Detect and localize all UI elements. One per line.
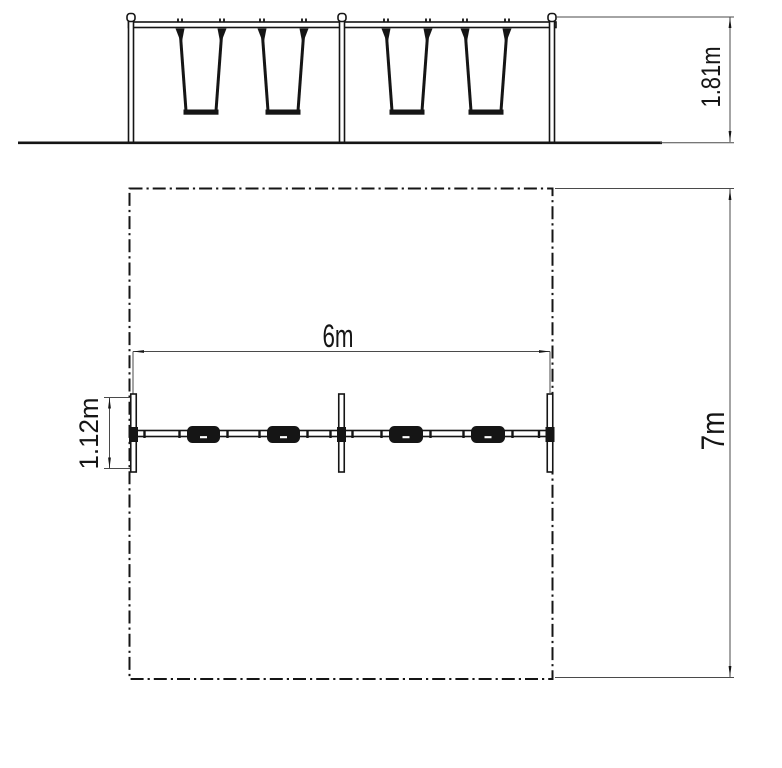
- height-dimension-label: 1.81m: [696, 47, 726, 108]
- dimension-depth: 7m: [555, 189, 734, 678]
- post-cap-middle: [338, 14, 346, 22]
- plan-view: 6m 7m 1.12m: [74, 189, 734, 680]
- swing-chain-right: [216, 29, 222, 111]
- swing-seat: [469, 110, 504, 115]
- swing-chain-left: [465, 29, 471, 111]
- swing-chain-right: [298, 29, 304, 111]
- swing-1: [176, 29, 227, 115]
- swing-seat: [390, 110, 425, 115]
- plan-hub-right: [546, 427, 555, 442]
- dimension-height: 1.81m: [557, 17, 734, 143]
- swing-chain-left: [262, 29, 268, 111]
- swing-seat: [266, 110, 301, 115]
- swing-chain-left: [386, 29, 392, 111]
- plan-hub-left: [129, 427, 138, 442]
- plan-seat-2: [267, 426, 300, 443]
- swing-seat: [184, 110, 219, 115]
- post-left: [129, 16, 134, 143]
- plan-hub-middle: [337, 427, 346, 442]
- plan-seat-3: [389, 426, 423, 443]
- swing-chain-right: [501, 29, 507, 111]
- width-dimension-label: 6m: [323, 318, 354, 354]
- swing-chain-left: [180, 29, 186, 111]
- dimension-frame-depth: 1.12m: [74, 398, 137, 470]
- depth-dimension-label: 7m: [695, 412, 731, 451]
- post-right: [550, 16, 555, 143]
- arrow-down-icon: [108, 458, 111, 469]
- arrow-right-icon: [539, 350, 550, 353]
- plan-seat-4: [471, 426, 505, 443]
- plan-seat-1: [187, 426, 220, 443]
- post-cap-left: [127, 14, 135, 22]
- arrow-up-icon: [108, 398, 111, 409]
- post-middle: [340, 16, 345, 143]
- arrow-up-icon: [729, 17, 732, 28]
- post-cap-right: [548, 14, 556, 22]
- frame-depth-dimension-label: 1.12m: [74, 398, 104, 470]
- swing-4: [461, 29, 512, 115]
- arrow-up-icon: [729, 189, 732, 200]
- drawing-canvas: 1.81m 6m 7m: [0, 0, 782, 768]
- swing-3: [382, 29, 433, 115]
- arrow-left-icon: [133, 350, 144, 353]
- swing-2: [258, 29, 309, 115]
- arrow-down-icon: [729, 131, 732, 142]
- elevation-view: 1.81m: [18, 14, 734, 143]
- swing-chain-right: [422, 29, 428, 111]
- arrow-down-icon: [729, 666, 732, 677]
